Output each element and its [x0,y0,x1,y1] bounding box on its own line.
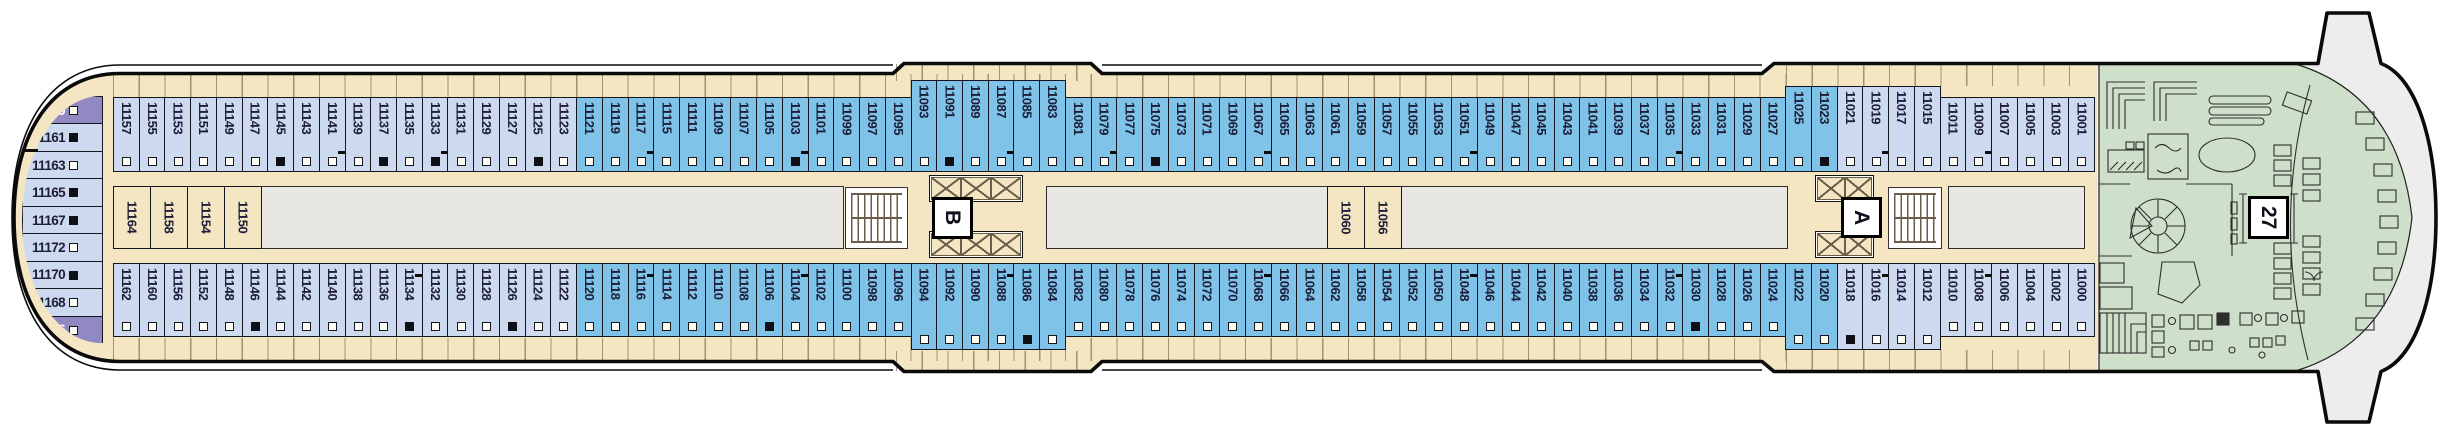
cabin-11083: 11083 [1039,80,1066,172]
cabin-feature-square [894,157,903,166]
cabin-feature-square [765,157,774,166]
cabin-number-label: 11098 [866,268,879,301]
cabin-11152: 11152 [190,263,217,337]
cabin-feature-square [1691,157,1700,166]
cabin-feature-square [971,157,980,166]
cabin-11053: 11053 [1425,97,1452,172]
cabin-number-label: 11132 [429,268,442,300]
cabin-11127: 11127 [499,97,526,172]
cabin-feature-square-filled [1151,157,1160,166]
cabin-number-label: 11006 [1998,268,2011,301]
cabin-number-label: 11137 [377,102,390,134]
cabin-11095: 11095 [885,97,912,172]
cabin-number-label: 11093 [918,85,931,118]
cabin-feature-square-filled [69,216,78,225]
cabin-11045: 11045 [1528,97,1555,172]
cabin-number-label: 11135 [403,102,416,134]
cabin-number-label: 11034 [1638,268,1651,301]
cabin-number-label: 11071 [1201,102,1214,135]
cabin-feature-square [1280,157,1289,166]
cabin-feature-square [1614,322,1623,331]
cabin-number-label: 11138 [352,268,365,300]
cabin-feature-square [1383,322,1392,331]
cabin-11025: 11025 [1785,86,1812,172]
cabin-number-label: 11166 [32,323,65,337]
cabin-feature-square [1511,157,1520,166]
cabin-feature-square [611,322,620,331]
cabin-11019: 11019 [1862,86,1889,172]
cabin-number-label: 11146 [249,268,262,300]
cabin-feature-square [791,322,800,331]
cabin-11097: 11097 [859,97,886,172]
cabin-number-label: 11124 [532,268,545,300]
cabin-feature-square [1666,157,1675,166]
cabin-number-label: 11168 [32,296,65,310]
cabin-11151: 11151 [190,97,217,172]
cabin-feature-square [1460,322,1469,331]
cabin-feature-square [2000,157,2009,166]
cabin-number-label: 11085 [1021,85,1034,118]
cabin-feature-square [1923,157,1932,166]
connecting-door-tick [25,149,38,152]
cabin-11160: 11160 [139,263,166,337]
cabin-feature-square [920,335,929,344]
cabin-11145: 11145 [267,97,294,172]
cabin-number-label: 11054 [1381,268,1394,301]
cabin-number-label: 11005 [2024,102,2037,135]
cabin-feature-square [1023,157,1032,166]
cabin-11128: 11128 [473,263,500,337]
cabin-11154: 11154 [187,186,225,249]
cabin-number-label: 11046 [1484,268,1497,301]
cabin-11079: 11079 [1091,97,1118,172]
cabin-feature-square [971,335,980,344]
cabin-11126: 11126 [499,263,526,337]
cabin-feature-square [1125,322,1134,331]
balcony-strip-bottom-bump [896,351,1099,371]
cabin-feature-square [354,322,363,331]
cabin-number-label: 11103 [789,102,802,134]
cabin-number-label: 11104 [789,268,802,300]
cabin-11096: 11096 [885,263,912,337]
cabin-feature-square [611,157,620,166]
cabin-11091: 11091 [936,80,963,172]
cabin-11124: 11124 [525,263,552,337]
open-space-fwd [1948,186,2085,249]
cabin-11030: 11030 [1682,263,1709,337]
cabin-11010: 11010 [1940,263,1967,337]
cabin-number-label: 11074 [1175,268,1188,301]
cabin-number-label: 11092 [943,268,956,301]
cabin-feature-square [1048,335,1057,344]
cabin-11074: 11074 [1168,263,1195,337]
cabin-11147: 11147 [242,97,269,172]
cabin-11011: 11011 [1940,97,1967,172]
cabin-number-label: 11148 [223,268,236,300]
cabin-feature-square [69,243,78,252]
cabin-11002: 11002 [2043,263,2070,337]
cabin-number-label: 11045 [1535,102,1548,135]
cabin-number-label: 11011 [1947,102,1960,134]
cabin-feature-square [199,157,208,166]
cabin-feature-square [1640,322,1649,331]
cabin-11148: 11148 [216,263,243,337]
cabin-number-label: 11020 [1818,268,1831,301]
cabin-feature-square [302,322,311,331]
cabin-feature-square [1769,322,1778,331]
cabin-11144: 11144 [267,263,294,337]
stairs-icon-forward [1888,187,1942,249]
cabin-number-label: 11153 [172,102,185,134]
elevator-icon [991,233,1021,256]
cabin-11122: 11122 [550,263,577,337]
cabin-feature-square [1460,157,1469,166]
cabin-number-label: 11131 [455,102,468,134]
cabin-number-label: 11033 [1689,102,1702,135]
cabin-11073: 11073 [1168,97,1195,172]
cabin-11064: 11064 [1296,263,1323,337]
cabin-feature-square [585,322,594,331]
cabin-number-label: 11091 [943,85,956,118]
cabin-11058: 11058 [1348,263,1375,337]
cabin-feature-square [842,157,851,166]
cabin-feature-square [868,157,877,166]
cabin-number-label: 11094 [918,268,931,301]
cabin-feature-square [688,322,697,331]
cabin-11114: 11114 [653,263,680,337]
cabin-number-label: 11120 [583,268,596,300]
cabin-11033: 11033 [1682,97,1709,172]
cabin-11130: 11130 [447,263,474,337]
cabin-feature-square [457,322,466,331]
cabin-11153: 11153 [164,97,191,172]
cabin-11028: 11028 [1708,263,1735,337]
cabin-11103: 11103 [782,97,809,172]
cabin-number-label: 11037 [1638,102,1651,135]
cabin-feature-square [1820,335,1829,344]
cabin-feature-square [534,322,543,331]
cabin-feature-square [2026,157,2035,166]
cabin-number-label: 11055 [1406,102,1419,135]
cabin-11014: 11014 [1888,263,1915,350]
cabin-number-label: 11031 [1715,102,1728,135]
cabin-11132: 11132 [422,263,449,337]
cabin-number-label: 11112 [686,268,699,300]
cabin-11105: 11105 [756,97,783,172]
cabin-feature-square-filled [945,157,954,166]
cabin-feature-square [1383,157,1392,166]
cabin-feature-square [1254,322,1263,331]
cabin-number-label: 11107 [738,102,751,134]
cabin-11082: 11082 [1065,263,1092,337]
cabin-11166: 11166 [22,316,103,343]
cabin-number-label: 11024 [1767,268,1780,301]
cabin-number-label: 11040 [1561,268,1574,301]
cabin-feature-square [1331,157,1340,166]
cabin-number-label: 11002 [2050,268,2063,301]
cabin-11049: 11049 [1477,97,1504,172]
cabin-feature-square-filled [1846,335,1855,344]
cabin-number-label: 11155 [146,102,159,134]
cabin-feature-square [2000,322,2009,331]
cabin-number-label: 11058 [1355,268,1368,301]
cabin-11149: 11149 [216,97,243,172]
cabin-number-label: 11001 [2075,102,2088,135]
cabin-feature-square [662,322,671,331]
cabin-11165: 11165 [22,178,103,207]
cabin-feature-square [997,335,1006,344]
cabin-feature-square [1408,157,1417,166]
cabin-number-label: 11143 [300,102,313,134]
cabin-11077: 11077 [1116,97,1143,172]
cabin-number-label: 11021 [1844,91,1857,124]
cabin-11086: 11086 [1013,263,1040,350]
cabin-number-label: 11164 [126,201,139,233]
cabin-11142: 11142 [293,263,320,337]
cabin-feature-square [122,322,131,331]
open-space-aft [261,186,844,249]
stairwell-label-b: B [932,197,973,239]
cabin-11085: 11085 [1013,80,1040,172]
cabin-feature-square [1923,335,1932,344]
cabin-number-label: 11080 [1098,268,1111,301]
cabin-number-label: 11015 [1921,91,1934,124]
cabin-11035: 11035 [1657,97,1684,172]
cabin-11039: 11039 [1605,97,1632,172]
cabin-11140: 11140 [319,263,346,337]
cabin-11056: 11056 [1364,186,1402,249]
cabin-number-label: 11072 [1201,268,1214,301]
cabin-feature-square [1589,157,1598,166]
cabin-number-label: 11030 [1689,268,1702,301]
cabin-number-label: 11087 [995,85,1008,118]
cabin-number-label: 11161 [32,131,65,145]
cabin-11041: 11041 [1579,97,1606,172]
cabin-11102: 11102 [808,263,835,337]
cabin-number-label: 11060 [1340,201,1353,234]
cabin-feature-square [1151,322,1160,331]
cabin-number-label: 11023 [1818,91,1831,124]
cabin-feature-square-filled [69,133,78,142]
cabin-number-label: 11140 [326,268,339,300]
cabin-11004: 11004 [2017,263,2044,337]
cabin-11003: 11003 [2043,97,2070,172]
cabin-number-label: 11056 [1377,201,1390,234]
cabin-feature-square [945,335,954,344]
cabin-number-label: 11068 [1252,268,1265,301]
cabin-feature-square [868,322,877,331]
deck-plan: 1115711155111531115111149111471114511143… [0,0,2439,441]
cabin-11038: 11038 [1579,263,1606,337]
cabin-11052: 11052 [1399,263,1426,337]
cabin-feature-square [328,322,337,331]
cabin-11050: 11050 [1425,263,1452,337]
cabin-feature-square [1717,157,1726,166]
cabin-11057: 11057 [1374,97,1401,172]
cabin-feature-square [1614,157,1623,166]
cabin-number-label: 11128 [480,268,493,300]
cabin-11093: 11093 [911,80,938,172]
cabin-feature-square [1306,322,1315,331]
cabin-feature-square [1949,322,1958,331]
cabin-feature-square [1717,322,1726,331]
cabin-11099: 11099 [833,97,860,172]
cabin-11054: 11054 [1374,263,1401,337]
cabin-number-label: 11152 [197,268,210,300]
cabin-number-label: 11158 [163,201,176,233]
cabin-number-label: 11026 [1741,268,1754,301]
cabin-11006: 11006 [1991,263,2018,337]
cabin-feature-square-filled [69,271,78,280]
cabin-11012: 11012 [1914,263,1941,350]
cabin-11108: 11108 [730,263,757,337]
cabin-feature-square [302,157,311,166]
cabin-number-label: 11149 [223,102,236,134]
stairwell-label-a-text: A [1851,210,1872,225]
cabin-11080: 11080 [1091,263,1118,337]
cabin-number-label: 11044 [1509,268,1522,301]
cabin-11137: 11137 [370,97,397,172]
cabin-number-label: 11145 [274,102,287,134]
elevator-icon [991,177,1021,200]
cabin-feature-square [1434,322,1443,331]
cabin-number-label: 11075 [1149,102,1162,135]
cabin-11065: 11065 [1271,97,1298,172]
cabin-feature-square [276,322,285,331]
cabin-11119: 11119 [602,97,629,172]
cabin-feature-square [148,157,157,166]
cabin-number-label: 11117 [635,102,648,134]
cabin-feature-square [1511,322,1520,331]
cabin-number-label: 11065 [1278,102,1291,135]
cabin-number-label: 11099 [840,102,853,135]
cabin-feature-square [714,157,723,166]
cabin-number-label: 11039 [1612,102,1625,135]
cabin-11042: 11042 [1528,263,1555,337]
cabin-number-label: 11088 [995,268,1008,301]
cabin-feature-square [1203,157,1212,166]
cabin-feature-square [1228,157,1237,166]
cabin-number-label: 11097 [866,102,879,135]
cabin-11029: 11029 [1734,97,1761,172]
bow-venue-label: 27 [2248,196,2289,239]
cabin-feature-square [894,322,903,331]
cabin-number-label: 11041 [1587,102,1600,135]
cabin-number-label: 11150 [237,201,250,233]
cabin-number-label: 11063 [1304,102,1317,135]
cabin-11167: 11167 [22,206,103,235]
cabin-number-label: 11052 [1406,268,1419,301]
cabin-11036: 11036 [1605,263,1632,337]
cabin-11143: 11143 [293,97,320,172]
cabin-number-label: 11066 [1278,268,1291,301]
cabin-11061: 11061 [1322,97,1349,172]
cabin-feature-square [508,157,517,166]
cabin-11168: 11168 [22,288,103,317]
cabin-11059: 11059 [1348,97,1375,172]
cabin-feature-square [1769,157,1778,166]
cabin-11120: 11120 [576,263,603,337]
cabin-feature-square [740,322,749,331]
cabin-number-label: 11081 [1072,102,1085,135]
cabin-number-label: 11069 [1226,102,1239,135]
cabin-11170: 11170 [22,261,103,290]
cabin-feature-square [1408,322,1417,331]
cabin-11092: 11092 [936,263,963,350]
cabin-number-label: 11119 [609,102,622,134]
cabin-number-label: 11111 [686,102,699,133]
cabin-feature-square [1666,322,1675,331]
cabin-11072: 11072 [1194,263,1221,337]
cabin-feature-square-filled [765,322,774,331]
cabin-feature-square-filled [69,188,78,197]
cabin-feature-square-filled [791,157,800,166]
cabin-11164: 11164 [113,186,151,249]
cabin-number-label: 11167 [32,214,65,228]
cabin-feature-square [148,322,157,331]
cabin-feature-square [714,322,723,331]
cabin-number-label: 11003 [2050,102,2063,135]
cabin-feature-square [328,157,337,166]
cabin-feature-square [431,322,440,331]
cabin-number-label: 11160 [146,268,159,300]
cabin-number-label: 11009 [1972,102,1985,135]
cabin-feature-square [1074,157,1083,166]
cabin-feature-square [920,157,929,166]
cabin-11110: 11110 [705,263,732,337]
cabin-number-label: 11073 [1175,102,1188,135]
cabin-feature-square [1974,157,1983,166]
cabin-number-label: 11129 [480,102,493,134]
cabin-feature-square [225,322,234,331]
cabin-feature-square [2077,157,2086,166]
cabin-11062: 11062 [1322,263,1349,337]
cabin-feature-square [1177,157,1186,166]
cabin-feature-square [1743,322,1752,331]
cabin-11034: 11034 [1631,263,1658,337]
cabin-11106: 11106 [756,263,783,337]
cabin-11146: 11146 [242,263,269,337]
cabin-11158: 11158 [150,186,188,249]
cabin-11157: 11157 [113,97,140,172]
cabin-number-label: 11078 [1123,268,1136,301]
cabin-feature-square [559,157,568,166]
cabin-11026: 11026 [1734,263,1761,337]
cabin-11172: 11172 [22,233,103,262]
cabin-11117: 11117 [628,97,655,172]
cabin-11020: 11020 [1811,263,1838,350]
cabin-feature-square [1357,157,1366,166]
cabin-number-label: 11025 [1792,91,1805,124]
cabin-11136: 11136 [370,263,397,337]
cabin-11161: 11161 [22,123,103,152]
cabin-number-label: 11053 [1432,102,1445,135]
cabin-number-label: 11017 [1895,91,1908,124]
cabin-number-label: 11059 [1355,102,1368,135]
cabin-11111: 11111 [679,97,706,172]
cabin-number-label: 11079 [1098,102,1111,135]
cabin-feature-square [2052,322,2061,331]
cabin-number-label: 11032 [1664,268,1677,301]
cabin-number-label: 11062 [1329,268,1342,301]
cabin-11118: 11118 [602,263,629,337]
cabin-11163: 11163 [22,151,103,180]
cabin-feature-square [1125,157,1134,166]
cabin-11112: 11112 [679,263,706,337]
cabin-feature-square [1486,322,1495,331]
cabin-11087: 11087 [988,80,1015,172]
cabin-feature-square [2052,157,2061,166]
